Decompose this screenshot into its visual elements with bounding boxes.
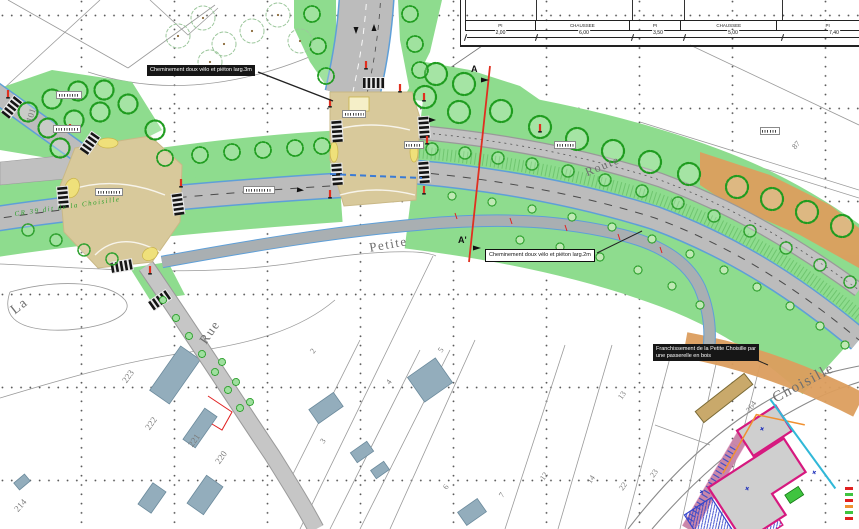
- xsec-cell-label: PI: [777, 21, 859, 30]
- xsec-dimension: 2,00: [495, 30, 507, 36]
- xsec-cell-label: PI: [630, 21, 681, 30]
- detail-site-plan: [657, 391, 853, 529]
- micro-label: [404, 141, 424, 149]
- xsec-cell-label: CHAUSSEE: [681, 21, 777, 30]
- micro-label: [760, 127, 780, 135]
- section-label-a-prime: A': [458, 235, 467, 245]
- callout-cheminement-2m: Cheminement doux vélo et piéton larg.2m: [485, 249, 595, 262]
- section-label-a: A: [471, 64, 478, 74]
- micro-label: [243, 186, 275, 194]
- xsec-cell-label: CHAUSSEE: [536, 21, 630, 30]
- micro-label: [53, 125, 81, 133]
- micro-label: [56, 91, 82, 99]
- xsec-dimension: 3,50: [652, 30, 664, 36]
- callout-passerelle: Franchissement de la Petite Choisille pa…: [653, 344, 759, 361]
- xsec-dimension: 6,00: [578, 30, 590, 36]
- callout-passerelle-line2: une passerelle en bois: [656, 353, 756, 360]
- micro-label: [554, 141, 576, 149]
- xsec-dimension: 7,40: [828, 30, 840, 36]
- xsec-cell-label: PI: [466, 21, 536, 30]
- plan-drawing: [0, 0, 859, 529]
- callout-cheminement-3m: Cheminement doux vélo et piéton larg.3m: [147, 65, 255, 76]
- cross-section-table: PICHAUSSEEPICHAUSSEEPI 2,006,003,505,007…: [460, 0, 859, 47]
- dimension-line: [467, 37, 859, 38]
- micro-label: [342, 110, 366, 118]
- callout-passerelle-line1: Franchissement de la Petite Choisille pa…: [656, 346, 756, 353]
- site-plan-canvas: PICHAUSSEEPICHAUSSEEPI 2,006,003,505,007…: [0, 0, 859, 529]
- xsec-dimension: 5,00: [727, 30, 739, 36]
- plan-legend-marks: [845, 487, 853, 520]
- micro-label: [95, 188, 123, 196]
